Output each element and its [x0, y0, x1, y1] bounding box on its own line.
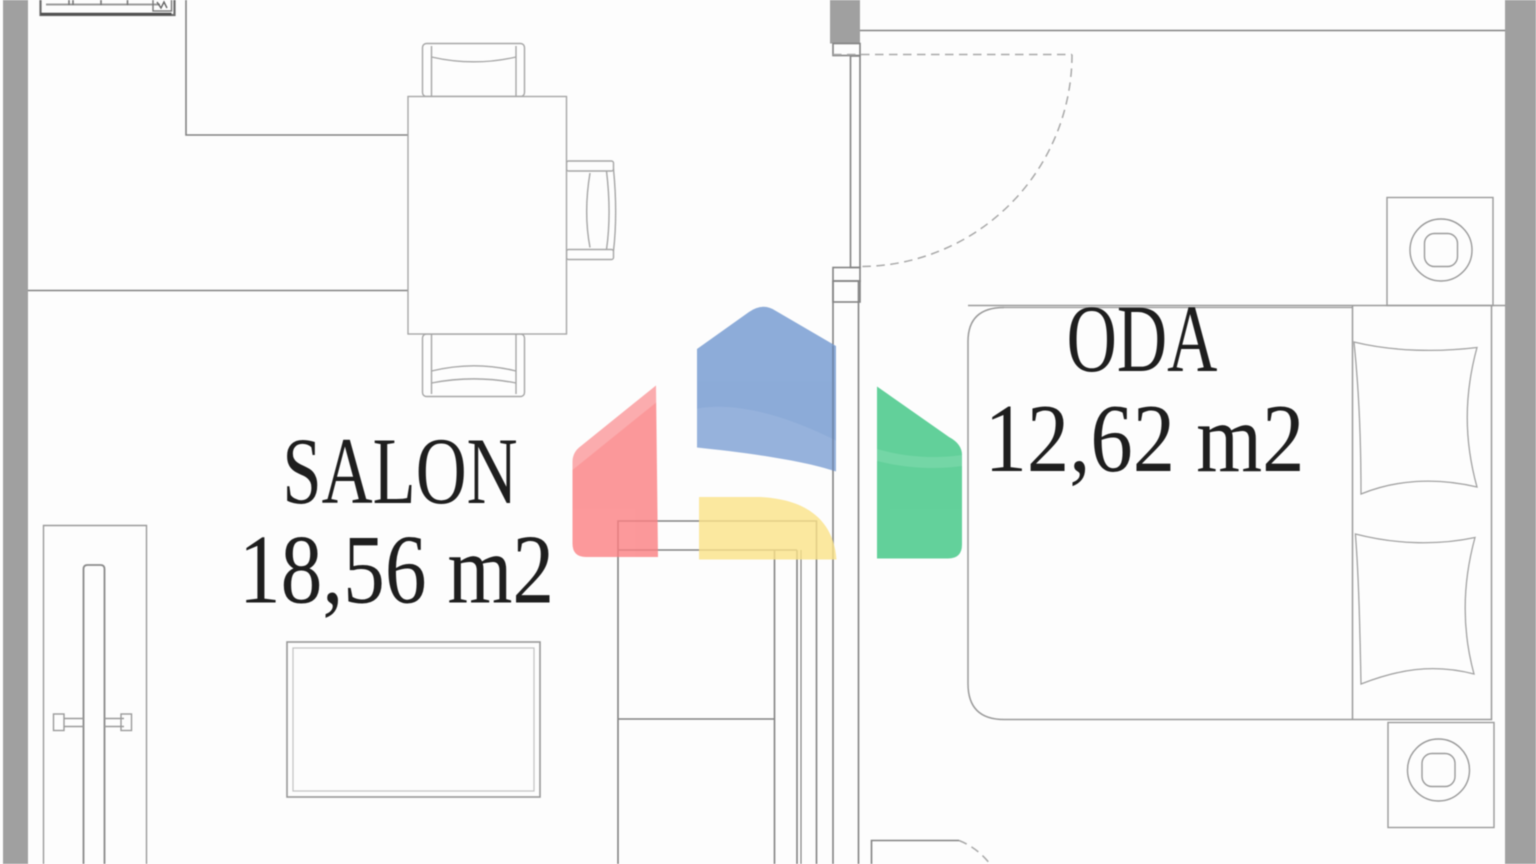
svg-text:18,56 m2: 18,56 m2 [239, 514, 554, 624]
svg-text:ODA: ODA [1067, 286, 1218, 392]
svg-text:12,62 m2: 12,62 m2 [985, 385, 1305, 493]
svg-text:SALON: SALON [282, 419, 517, 525]
